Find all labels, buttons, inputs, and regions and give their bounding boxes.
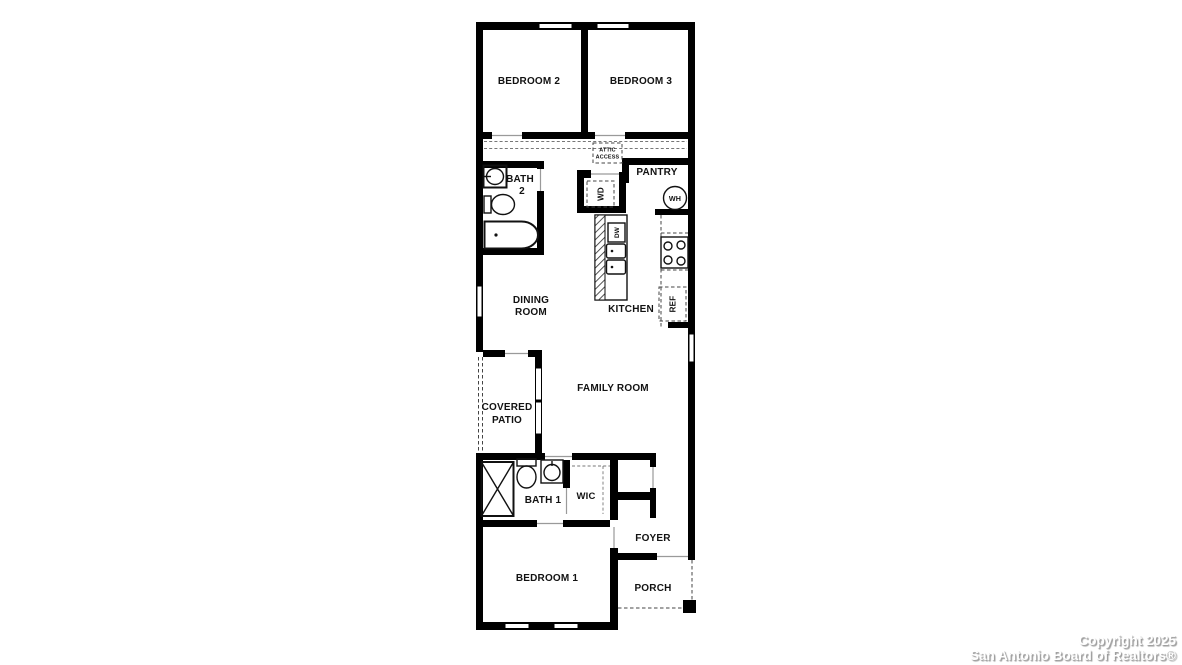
bath-1-label: BATH 1 — [525, 495, 562, 506]
floor-plan-drawing: BEDROOM 2 BEDROOM 3 BATH 2 PANTRY DINING… — [0, 0, 1182, 665]
dining-room-label-line2: ROOM — [515, 307, 547, 318]
shower-diagonals — [482, 463, 513, 515]
bathtub — [485, 222, 539, 249]
porch-post — [683, 600, 696, 613]
pantry-label: PANTRY — [636, 167, 677, 178]
water-heater-label: WH — [669, 194, 681, 203]
tub-drain — [494, 233, 497, 236]
dining-room-label-line1: DINING — [513, 295, 549, 306]
attic-access-label-line2: ACCESS — [596, 155, 620, 161]
hallway-guides — [484, 142, 687, 149]
kitchen-sink — [607, 244, 626, 258]
window — [597, 24, 629, 29]
sink-drain — [611, 250, 614, 253]
burner — [664, 242, 672, 250]
bath-1-fixtures — [482, 459, 611, 516]
refrigerator-label: REF — [669, 296, 678, 313]
porch-label: PORCH — [634, 583, 671, 594]
kitchen-sink — [607, 260, 626, 274]
burner — [677, 241, 685, 249]
watermark-line2: San Antonio Board of Realtors® — [970, 648, 1176, 663]
window — [505, 624, 529, 629]
watermark: Copyright 2025 San Antonio Board of Real… — [970, 633, 1176, 663]
toilet-tank — [517, 459, 536, 466]
wic-label: WIC — [576, 491, 595, 502]
dishwasher-label: DW — [614, 226, 621, 238]
toilet-bowl — [492, 195, 515, 215]
island-hatch — [595, 215, 605, 300]
wic-shelf-dashed — [572, 466, 610, 514]
burner — [664, 256, 672, 264]
washer-dryer-label: WD — [597, 187, 606, 201]
covered-patio-label-line2: PATIO — [492, 415, 522, 426]
toilet-bowl — [517, 466, 536, 488]
bath-2-label-line1: BATH — [506, 174, 534, 185]
toilet-tank — [484, 196, 491, 213]
burner — [677, 257, 685, 265]
watermark-line1: Copyright 2025 — [970, 633, 1176, 648]
bath-2-label-line2: 2 — [519, 186, 525, 197]
bedroom-3-label: BEDROOM 3 — [610, 76, 673, 87]
floor-plan-page: BEDROOM 2 BEDROOM 3 BATH 2 PANTRY DINING… — [0, 0, 1182, 665]
window — [689, 334, 694, 362]
attic-access-label-line1: ATTIC — [599, 148, 615, 154]
sink-drain — [611, 266, 614, 269]
family-room-label: FAMILY ROOM — [577, 383, 649, 394]
patio-door-panel — [536, 402, 542, 434]
window — [554, 624, 578, 629]
sink-bowl — [544, 465, 560, 481]
window — [477, 286, 482, 317]
bedroom-2-label: BEDROOM 2 — [498, 76, 561, 87]
patio-door-panel — [536, 368, 542, 400]
kitchen-label: KITCHEN — [608, 304, 654, 315]
bedroom-1-label: BEDROOM 1 — [516, 573, 579, 584]
covered-patio-label-line1: COVERED — [482, 402, 533, 413]
foyer-label: FOYER — [635, 533, 671, 544]
window — [539, 24, 572, 29]
